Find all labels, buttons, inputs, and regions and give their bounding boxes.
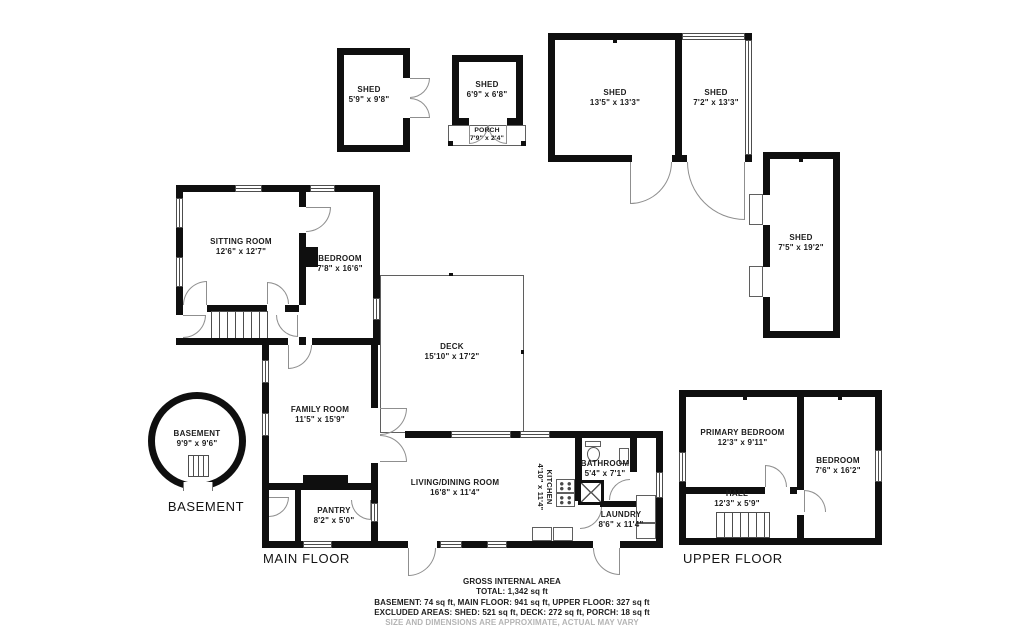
room-name: LAUNDRY [585, 510, 657, 520]
wall [285, 305, 299, 312]
room-name: PANTRY [297, 506, 371, 516]
kitchen-counter [532, 527, 552, 541]
window [682, 33, 745, 40]
room-dims: 12'3" x 9'11" [689, 438, 796, 448]
room-dims: 7'2" x 13'3" [676, 98, 756, 108]
room-dims: 7'6" x 16'2" [799, 466, 877, 476]
wall [875, 482, 882, 545]
summary-disclaimer: SIZE AND DIMENSIONS ARE APPROXIMATE, ACT… [0, 618, 1024, 628]
window [310, 185, 335, 192]
fireplace [303, 475, 348, 490]
door-arc [630, 162, 672, 204]
staircase [211, 311, 268, 339]
window [262, 360, 269, 383]
wall [405, 431, 451, 438]
room-name: BASEMENT [155, 429, 239, 439]
wall-tick [521, 350, 524, 354]
door-arc [269, 497, 289, 517]
room-name: SITTING ROOM [191, 237, 291, 247]
room-label-hall: HALL 12'3" x 5'9" [700, 489, 774, 508]
wall [262, 345, 269, 360]
door-arc [765, 465, 787, 487]
room-name: SHED [446, 80, 528, 90]
room-label-sitting-room: SITTING ROOM 12'6" x 12'7" [191, 237, 291, 256]
room-dims: 15'10" x 17'2" [409, 352, 495, 362]
wall [656, 431, 663, 472]
summary-total: TOTAL: 1,342 sq ft [0, 587, 1024, 597]
door-arc [804, 490, 826, 512]
wall [679, 482, 686, 545]
window [487, 541, 507, 548]
room-dims: 11'5" x 15'9" [268, 415, 372, 425]
door-arc [306, 207, 331, 232]
floor-plan: SHED 5'9" x 9'8" SHED 6'9" x 6'8" PORCH … [0, 0, 1024, 640]
wall [371, 541, 408, 548]
door-leaf [749, 266, 763, 297]
wall [763, 152, 770, 195]
room-label-bathroom: BATHROOM 5'4" x 7'1" [572, 459, 638, 478]
room-dims: 16'8" x 11'4" [384, 488, 526, 498]
wall-tick [799, 159, 803, 162]
wall [176, 185, 183, 198]
room-dims: 12'6" x 12'7" [191, 247, 291, 257]
room-label-pantry: PANTRY 8'2" x 5'0" [297, 506, 371, 525]
wall [403, 48, 410, 78]
wall [675, 155, 687, 162]
wall [176, 228, 183, 257]
area-summary: GROSS INTERNAL AREA TOTAL: 1,342 sq ft B… [0, 577, 1024, 628]
summary-excluded: EXCLUDED AREAS: SHED: 521 sq ft, DECK: 2… [0, 608, 1024, 618]
room-dims: 7'5" x 19'2" [760, 243, 842, 253]
window [176, 198, 183, 228]
summary-title: GROSS INTERNAL AREA [0, 577, 1024, 587]
wall [337, 48, 410, 55]
wall [875, 390, 882, 450]
room-name: KITCHEN [545, 447, 554, 527]
door-arc [410, 98, 430, 118]
wall [403, 118, 410, 152]
wall-tick [743, 397, 747, 400]
wall [262, 483, 303, 490]
room-label-bedroom-main: BEDROOM 7'8" x 16'6" [297, 254, 383, 273]
door-arc [288, 345, 312, 369]
wall [745, 33, 752, 40]
wall [312, 338, 373, 345]
door-arc [408, 548, 436, 576]
room-label-basement: BASEMENT 9'9" x 9'6" [155, 429, 239, 448]
wall [337, 145, 410, 152]
wall [373, 320, 380, 345]
wall [373, 185, 380, 298]
wall [797, 515, 804, 538]
wall [371, 463, 378, 503]
room-label-kitchen: KITCHEN 4'10" x 11'4" [536, 447, 554, 527]
room-label-primary-bedroom: PRIMARY BEDROOM 12'3" x 9'11" [689, 428, 796, 447]
wall [797, 397, 804, 490]
wall [452, 55, 523, 62]
room-dims: 8'6" x 11'4" [585, 520, 657, 530]
staircase [716, 512, 770, 538]
wall [507, 118, 523, 125]
room-name: DECK [409, 342, 495, 352]
room-dims: 6'9" x 6'8" [446, 90, 528, 100]
room-dims: 9'9" x 9'6" [155, 439, 239, 449]
summary-floors: BASEMENT: 74 sq ft, MAIN FLOOR: 941 sq f… [0, 598, 1024, 608]
wall [262, 185, 310, 192]
room-dims: 5'9" x 9'8" [328, 95, 410, 105]
wall [679, 390, 686, 452]
wall [600, 501, 637, 507]
window [679, 452, 686, 482]
wall [262, 541, 303, 548]
ladder-icon [188, 455, 209, 477]
room-name: PORCH [451, 127, 523, 135]
shower-icon [578, 480, 604, 505]
room-label-living-dining: LIVING/DINING ROOM 16'8" x 11'4" [384, 478, 526, 497]
door-arc [687, 162, 745, 220]
room-name: BATHROOM [572, 459, 638, 469]
room-name: SHED [328, 85, 410, 95]
room-label-shed-b: SHED 6'9" x 6'8" [446, 80, 528, 99]
room-name: HALL [700, 489, 774, 499]
window [440, 541, 462, 548]
wall [462, 541, 487, 548]
wall [262, 436, 269, 490]
room-label-shed-c: SHED 13'5" x 13'3" [575, 88, 655, 107]
wall [679, 538, 882, 545]
wall [620, 541, 663, 548]
kitchen-sink [553, 527, 573, 541]
room-dims: 7'8" x 16'6" [297, 264, 383, 274]
window [520, 431, 550, 438]
window [176, 257, 183, 287]
room-label-shed-d: SHED 7'2" x 13'3" [676, 88, 756, 107]
room-dims: 8'2" x 5'0" [297, 516, 371, 526]
wall [507, 541, 593, 548]
wall [763, 152, 840, 159]
wall [452, 118, 469, 125]
wall [183, 338, 288, 345]
room-name: SHED [575, 88, 655, 98]
door-arc [183, 315, 206, 338]
room-dims: 12'3" x 5'9" [700, 499, 774, 509]
wall [790, 487, 797, 494]
wall [763, 297, 770, 338]
wall [679, 390, 882, 397]
stove-icon [556, 479, 575, 493]
room-dims: 5'4" x 7'1" [572, 469, 638, 479]
door-arc [267, 282, 289, 304]
room-label-porch: PORCH 7'9" x 2'4" [451, 127, 523, 143]
wall [548, 155, 632, 162]
window [373, 298, 380, 320]
room-name: SHED [760, 233, 842, 243]
wall [176, 338, 183, 345]
wall-tick [613, 40, 617, 43]
wall [332, 541, 371, 548]
room-name: BEDROOM [297, 254, 383, 264]
wall-tick [838, 397, 842, 400]
room-dims: 4'10" x 11'4" [536, 447, 545, 527]
floor-label-basement: BASEMENT [158, 499, 254, 514]
door-arc [380, 435, 407, 462]
room-name: SHED [676, 88, 756, 98]
room-label-shed-a: SHED 5'9" x 9'8" [328, 85, 410, 104]
door-arc [183, 281, 207, 305]
wall [511, 431, 520, 438]
door-leaf [749, 194, 763, 225]
wall [262, 490, 269, 541]
wall [763, 331, 840, 338]
wall [371, 345, 378, 408]
room-name: FAMILY ROOM [268, 405, 372, 415]
room-name: PRIMARY BEDROOM [689, 428, 796, 438]
door-arc [593, 548, 620, 575]
wall [299, 192, 306, 207]
floor-label-main: MAIN FLOOR [263, 551, 350, 566]
floor-label-upper: UPPER FLOOR [683, 551, 783, 566]
room-label-family-room: FAMILY ROOM 11'5" x 15'9" [268, 405, 372, 424]
wall [176, 185, 235, 192]
room-name: LIVING/DINING ROOM [384, 478, 526, 488]
window [371, 503, 378, 522]
wall [548, 33, 555, 162]
wall [176, 287, 183, 315]
stove-icon [556, 493, 575, 507]
basement-opening [183, 482, 213, 491]
wall [548, 33, 682, 40]
room-dims: 7'9" x 2'4" [451, 135, 523, 143]
door-arc [410, 78, 430, 98]
window [303, 541, 332, 548]
room-dims: 13'5" x 13'3" [575, 98, 655, 108]
wall [745, 155, 752, 162]
window [656, 472, 663, 498]
door-arc [609, 479, 630, 500]
wall [299, 337, 306, 345]
window [235, 185, 262, 192]
door-arc [276, 315, 298, 337]
wall [348, 483, 371, 490]
room-label-shed-e: SHED 7'5" x 19'2" [760, 233, 842, 252]
room-label-laundry: LAUNDRY 8'6" x 11'4" [585, 510, 657, 529]
window [451, 431, 511, 438]
room-label-deck: DECK 15'10" x 17'2" [409, 342, 495, 361]
room-label-bedroom-upper: BEDROOM 7'6" x 16'2" [799, 456, 877, 475]
wall-tick [449, 273, 453, 276]
wall [550, 431, 663, 438]
room-name: BEDROOM [799, 456, 877, 466]
